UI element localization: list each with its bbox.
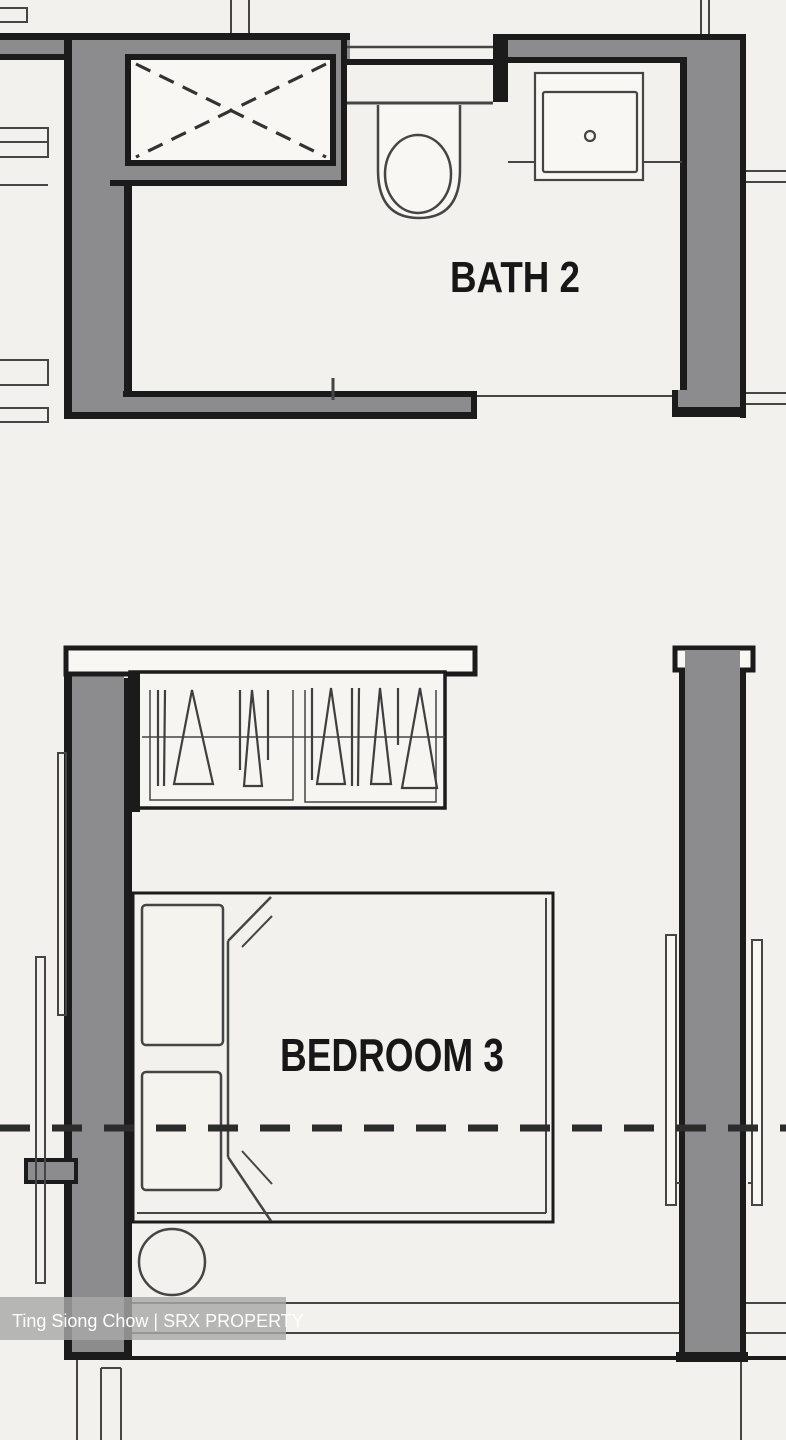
side-stool-icon xyxy=(139,1229,205,1295)
wall-bath-bottom xyxy=(64,391,477,419)
watermark-text: Ting Siong Chow | SRX PROPERTY xyxy=(12,1311,304,1331)
wardrobe-hangers-icon xyxy=(128,672,445,812)
wall-bedroom-left xyxy=(26,646,132,1360)
shower-stall-icon xyxy=(128,57,333,163)
floor-plan-screenshot: BATH 2 xyxy=(0,0,786,1440)
duvet-fold xyxy=(228,897,272,1221)
bath-section: BATH 2 xyxy=(0,0,786,422)
room-label-bedroom: BEDROOM 3 xyxy=(280,1029,504,1081)
window-glazing-icon xyxy=(36,753,66,1283)
pillow-icon xyxy=(142,905,223,1045)
wall-bedroom-top-bar xyxy=(66,648,475,674)
room-label-bath: BATH 2 xyxy=(450,253,580,302)
floor-plan: BATH 2 xyxy=(0,0,786,1440)
watermark: Ting Siong Chow | SRX PROPERTY xyxy=(0,1297,304,1340)
wall-stub xyxy=(26,1160,76,1182)
wash-basin-icon xyxy=(508,73,682,180)
toilet-icon xyxy=(378,105,460,218)
wall-bedroom-right xyxy=(675,648,753,1362)
